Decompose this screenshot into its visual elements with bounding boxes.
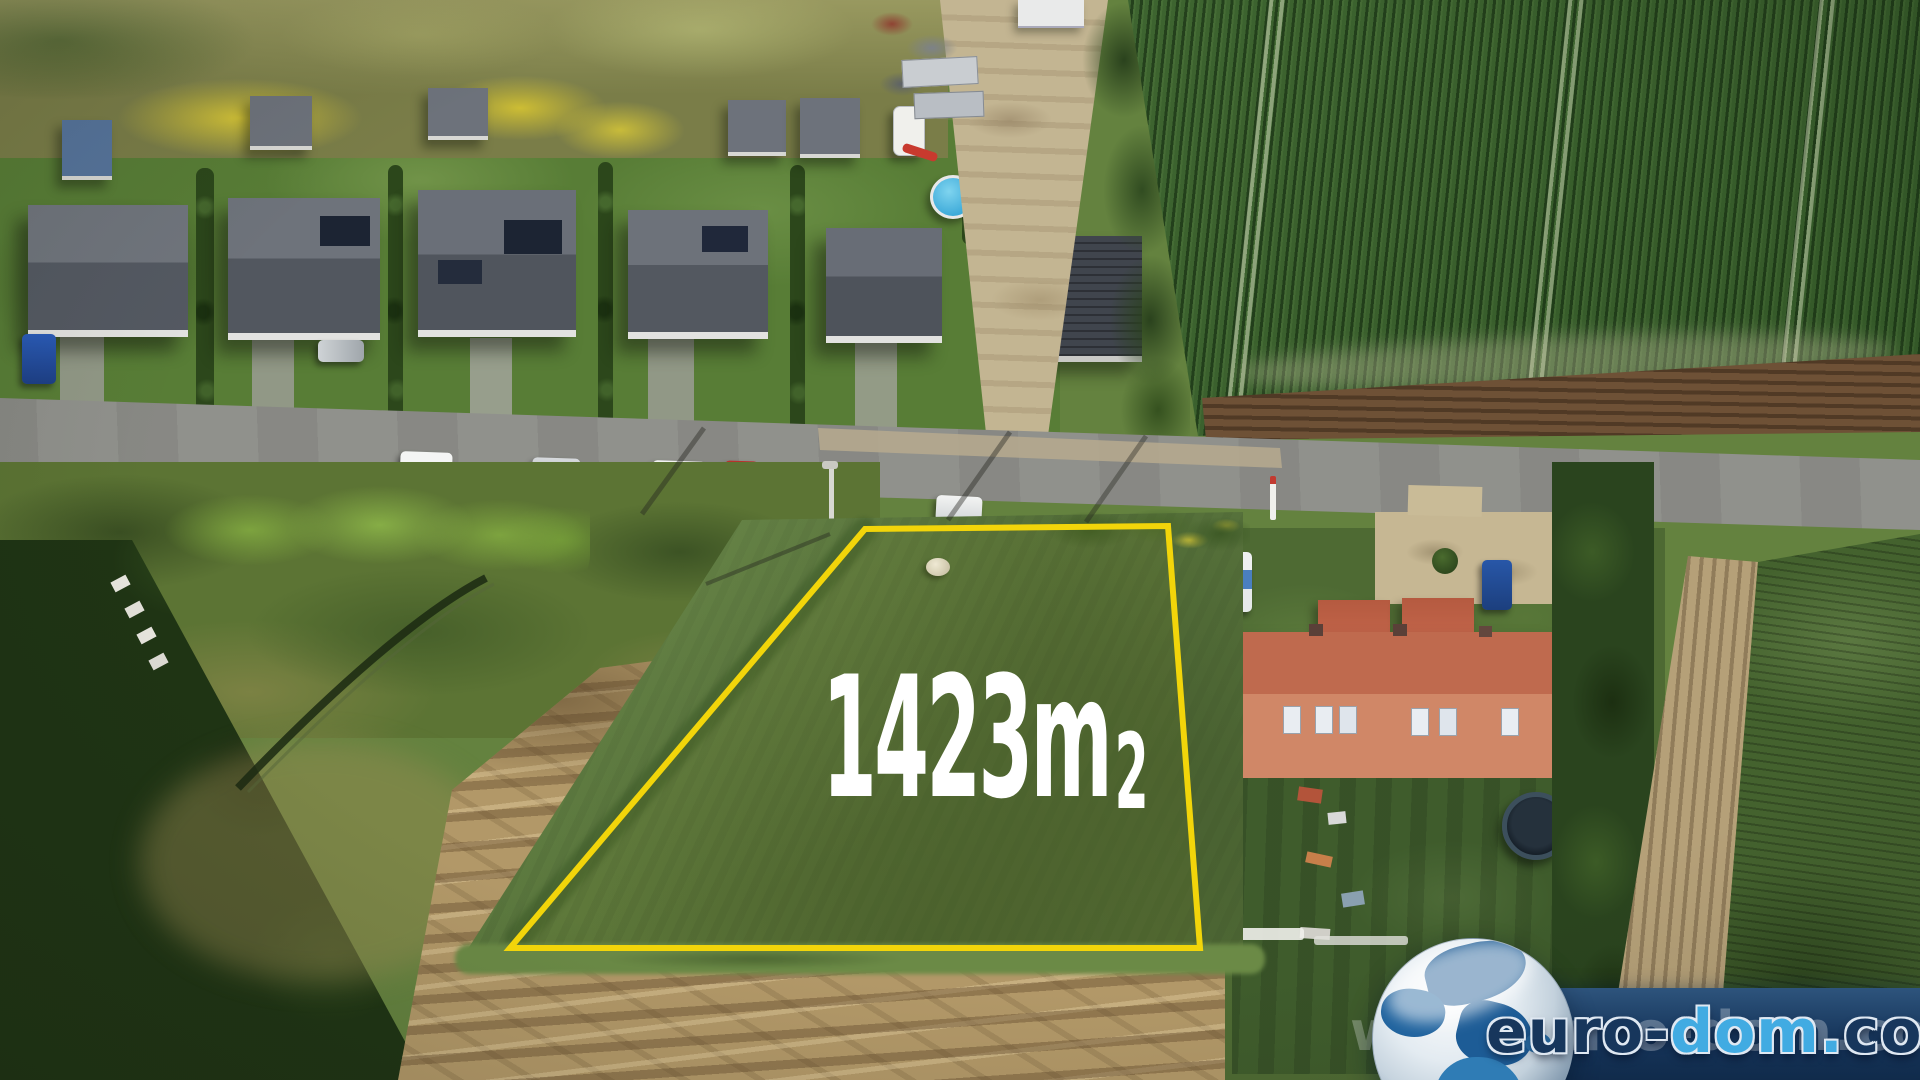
brand-segment-co: co bbox=[1844, 997, 1920, 1067]
brand-segment-euro: euro- bbox=[1486, 997, 1670, 1067]
area-label: 1423m2 bbox=[822, 654, 1517, 822]
pole-shadow bbox=[948, 432, 1010, 520]
pole-shadow bbox=[1086, 436, 1146, 522]
lamp-shadow bbox=[706, 534, 830, 584]
overlay-graphics bbox=[0, 0, 1920, 1080]
brand-text: euro-dom.co bbox=[1486, 1002, 1920, 1062]
pole-shadow bbox=[642, 428, 704, 514]
brand-segment-dom: dom bbox=[1670, 997, 1820, 1067]
brand-segment-dot: . bbox=[1820, 997, 1844, 1067]
area-value: 1423 bbox=[822, 640, 1030, 836]
aerial-photo: 1423m2 www.euro-dom.co euro-dom.co bbox=[0, 0, 1920, 1080]
drainage-ditch-bank bbox=[248, 584, 494, 792]
area-unit: m bbox=[1030, 640, 1111, 836]
area-subscript: 2 bbox=[1115, 720, 1149, 824]
area-label-text: 1423m2 bbox=[822, 654, 1149, 822]
